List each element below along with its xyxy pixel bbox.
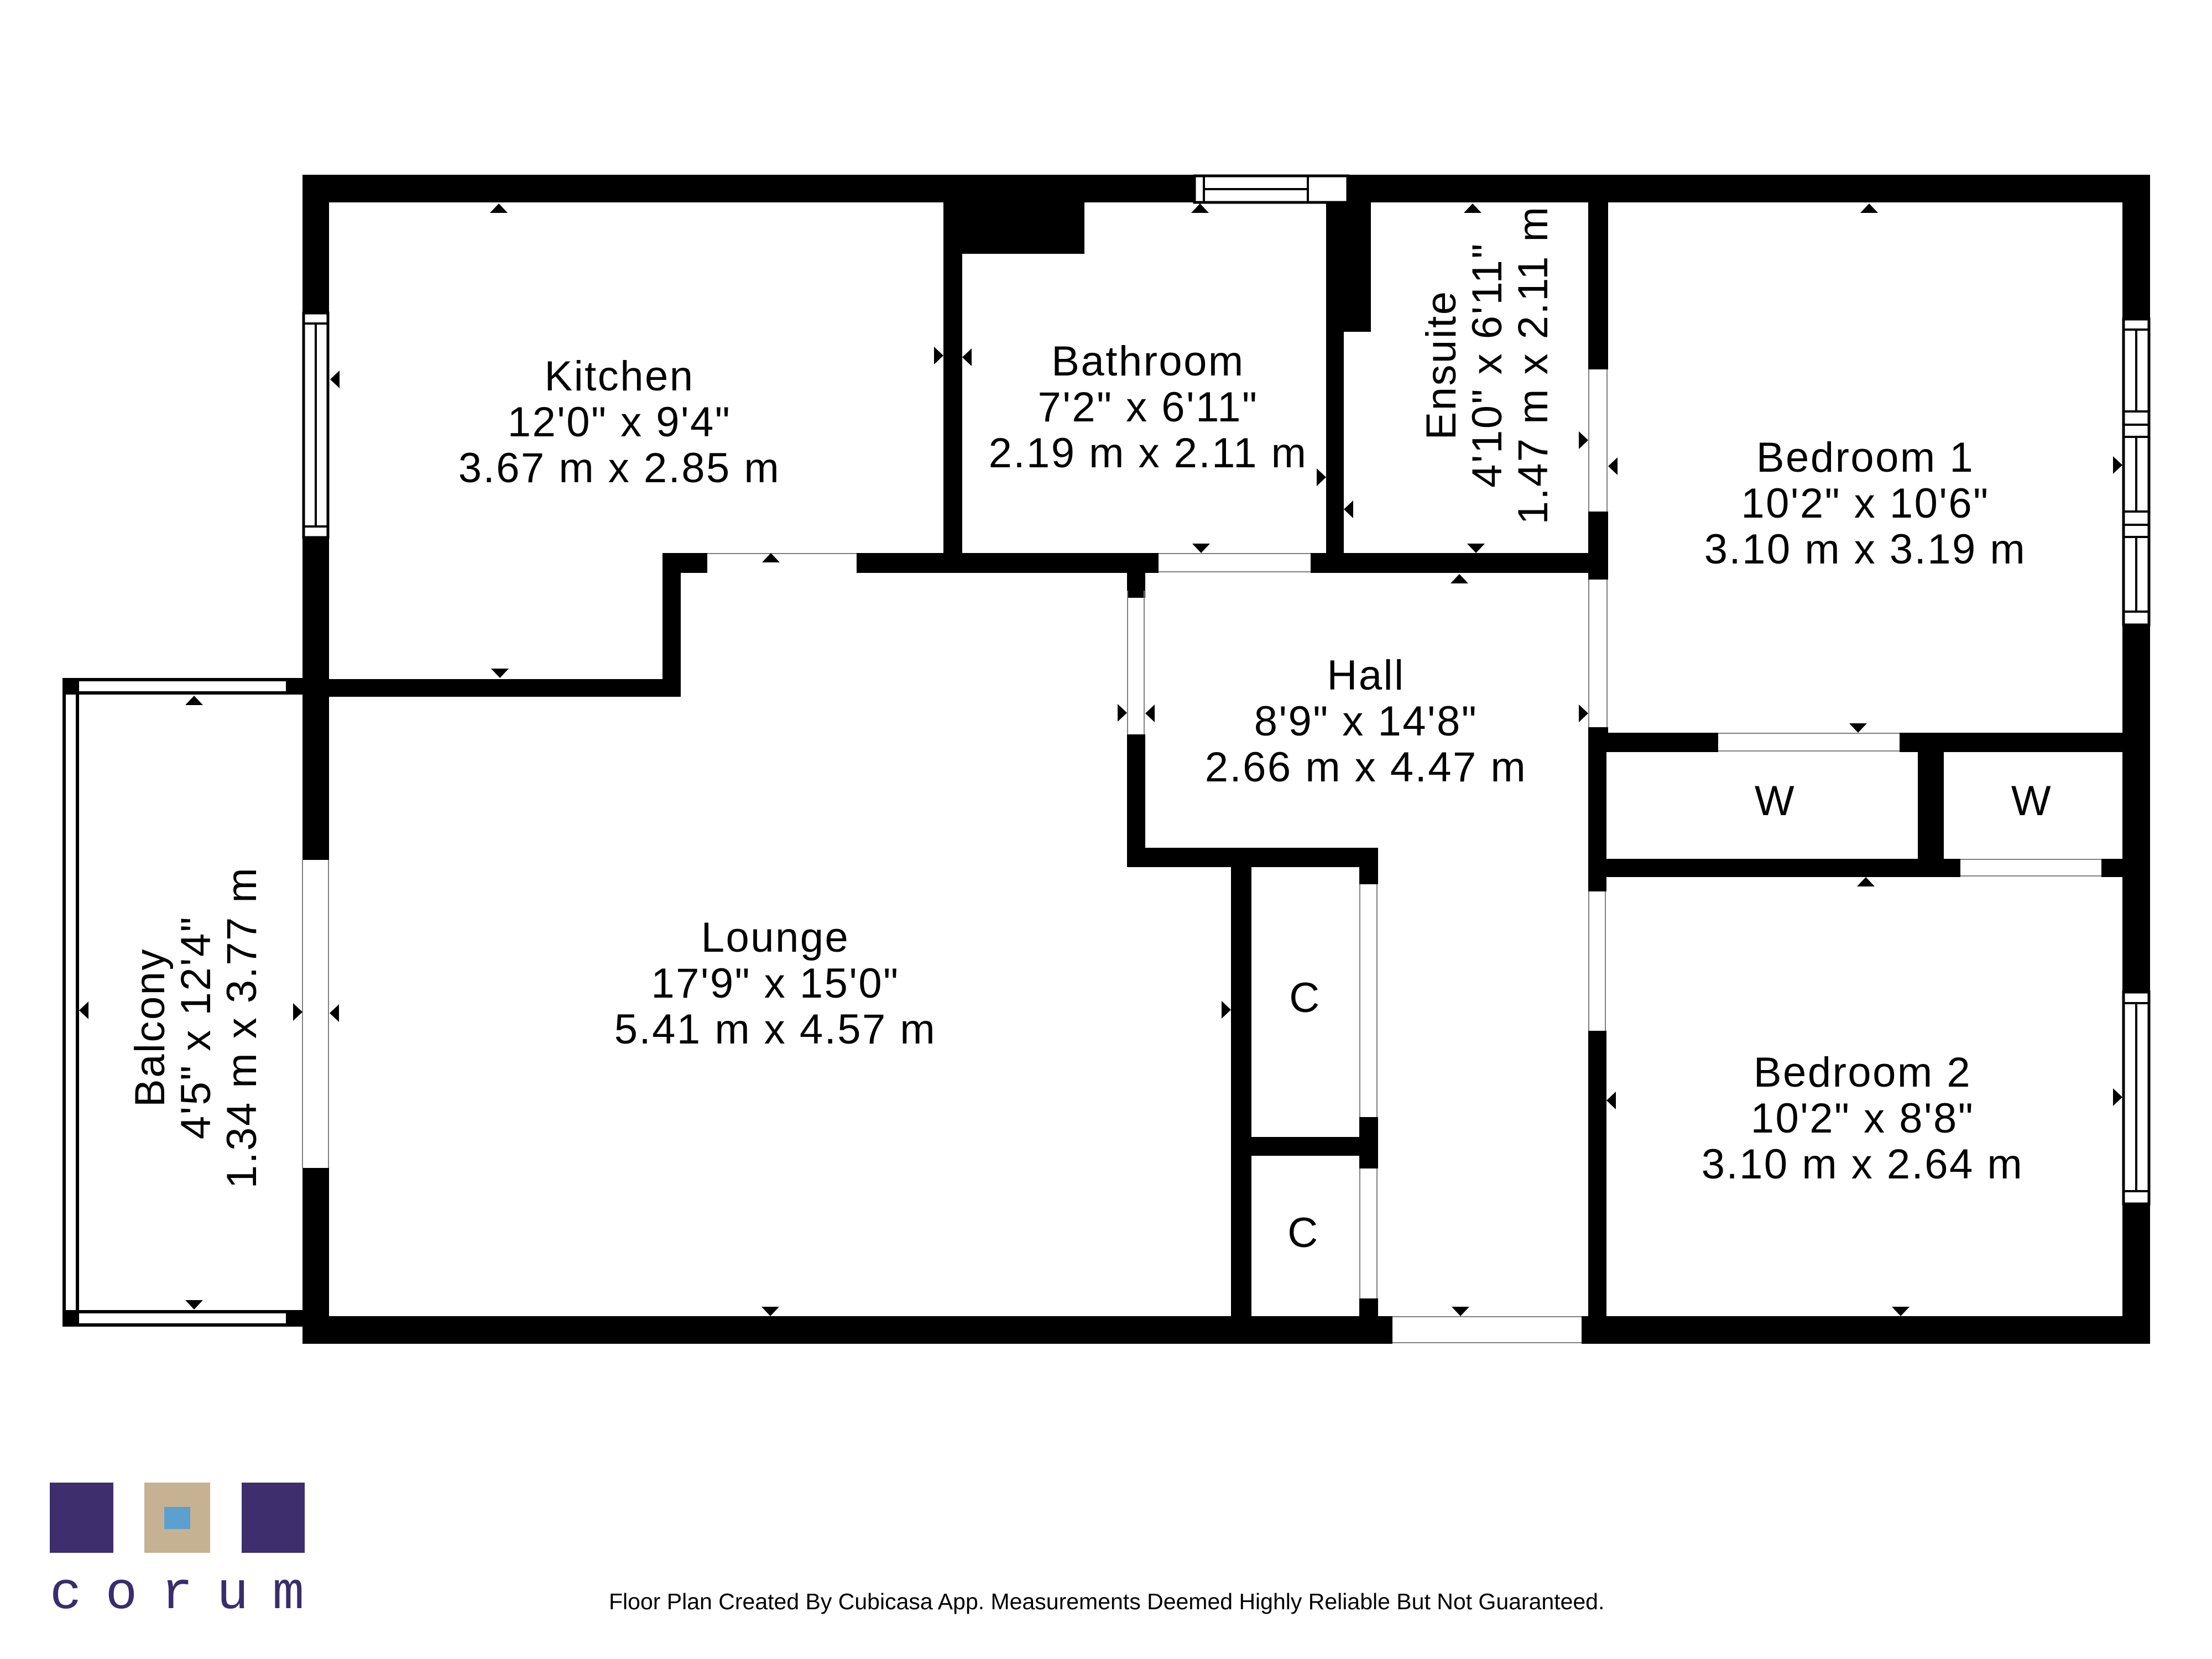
svg-text:Ensuite: Ensuite [1418,290,1465,440]
svg-text:W: W [1755,778,1796,825]
svg-text:C: C [1287,1209,1319,1256]
svg-text:C: C [1289,974,1321,1021]
svg-text:W: W [2011,778,2052,825]
svg-text:Floor Plan Created By Cubicasa: Floor Plan Created By Cubicasa App. Meas… [609,1589,1604,1614]
svg-text:4'10" x 6'11": 4'10" x 6'11" [1464,242,1511,488]
svg-text:Balcony: Balcony [127,948,174,1107]
svg-text:corum: corum [50,1564,328,1624]
svg-text:1.34 m x 3.77 m: 1.34 m x 3.77 m [218,867,265,1188]
svg-text:1.47 m x 2.11 m: 1.47 m x 2.11 m [1510,206,1557,525]
svg-text:4'5" x 12'4": 4'5" x 12'4" [173,916,220,1140]
